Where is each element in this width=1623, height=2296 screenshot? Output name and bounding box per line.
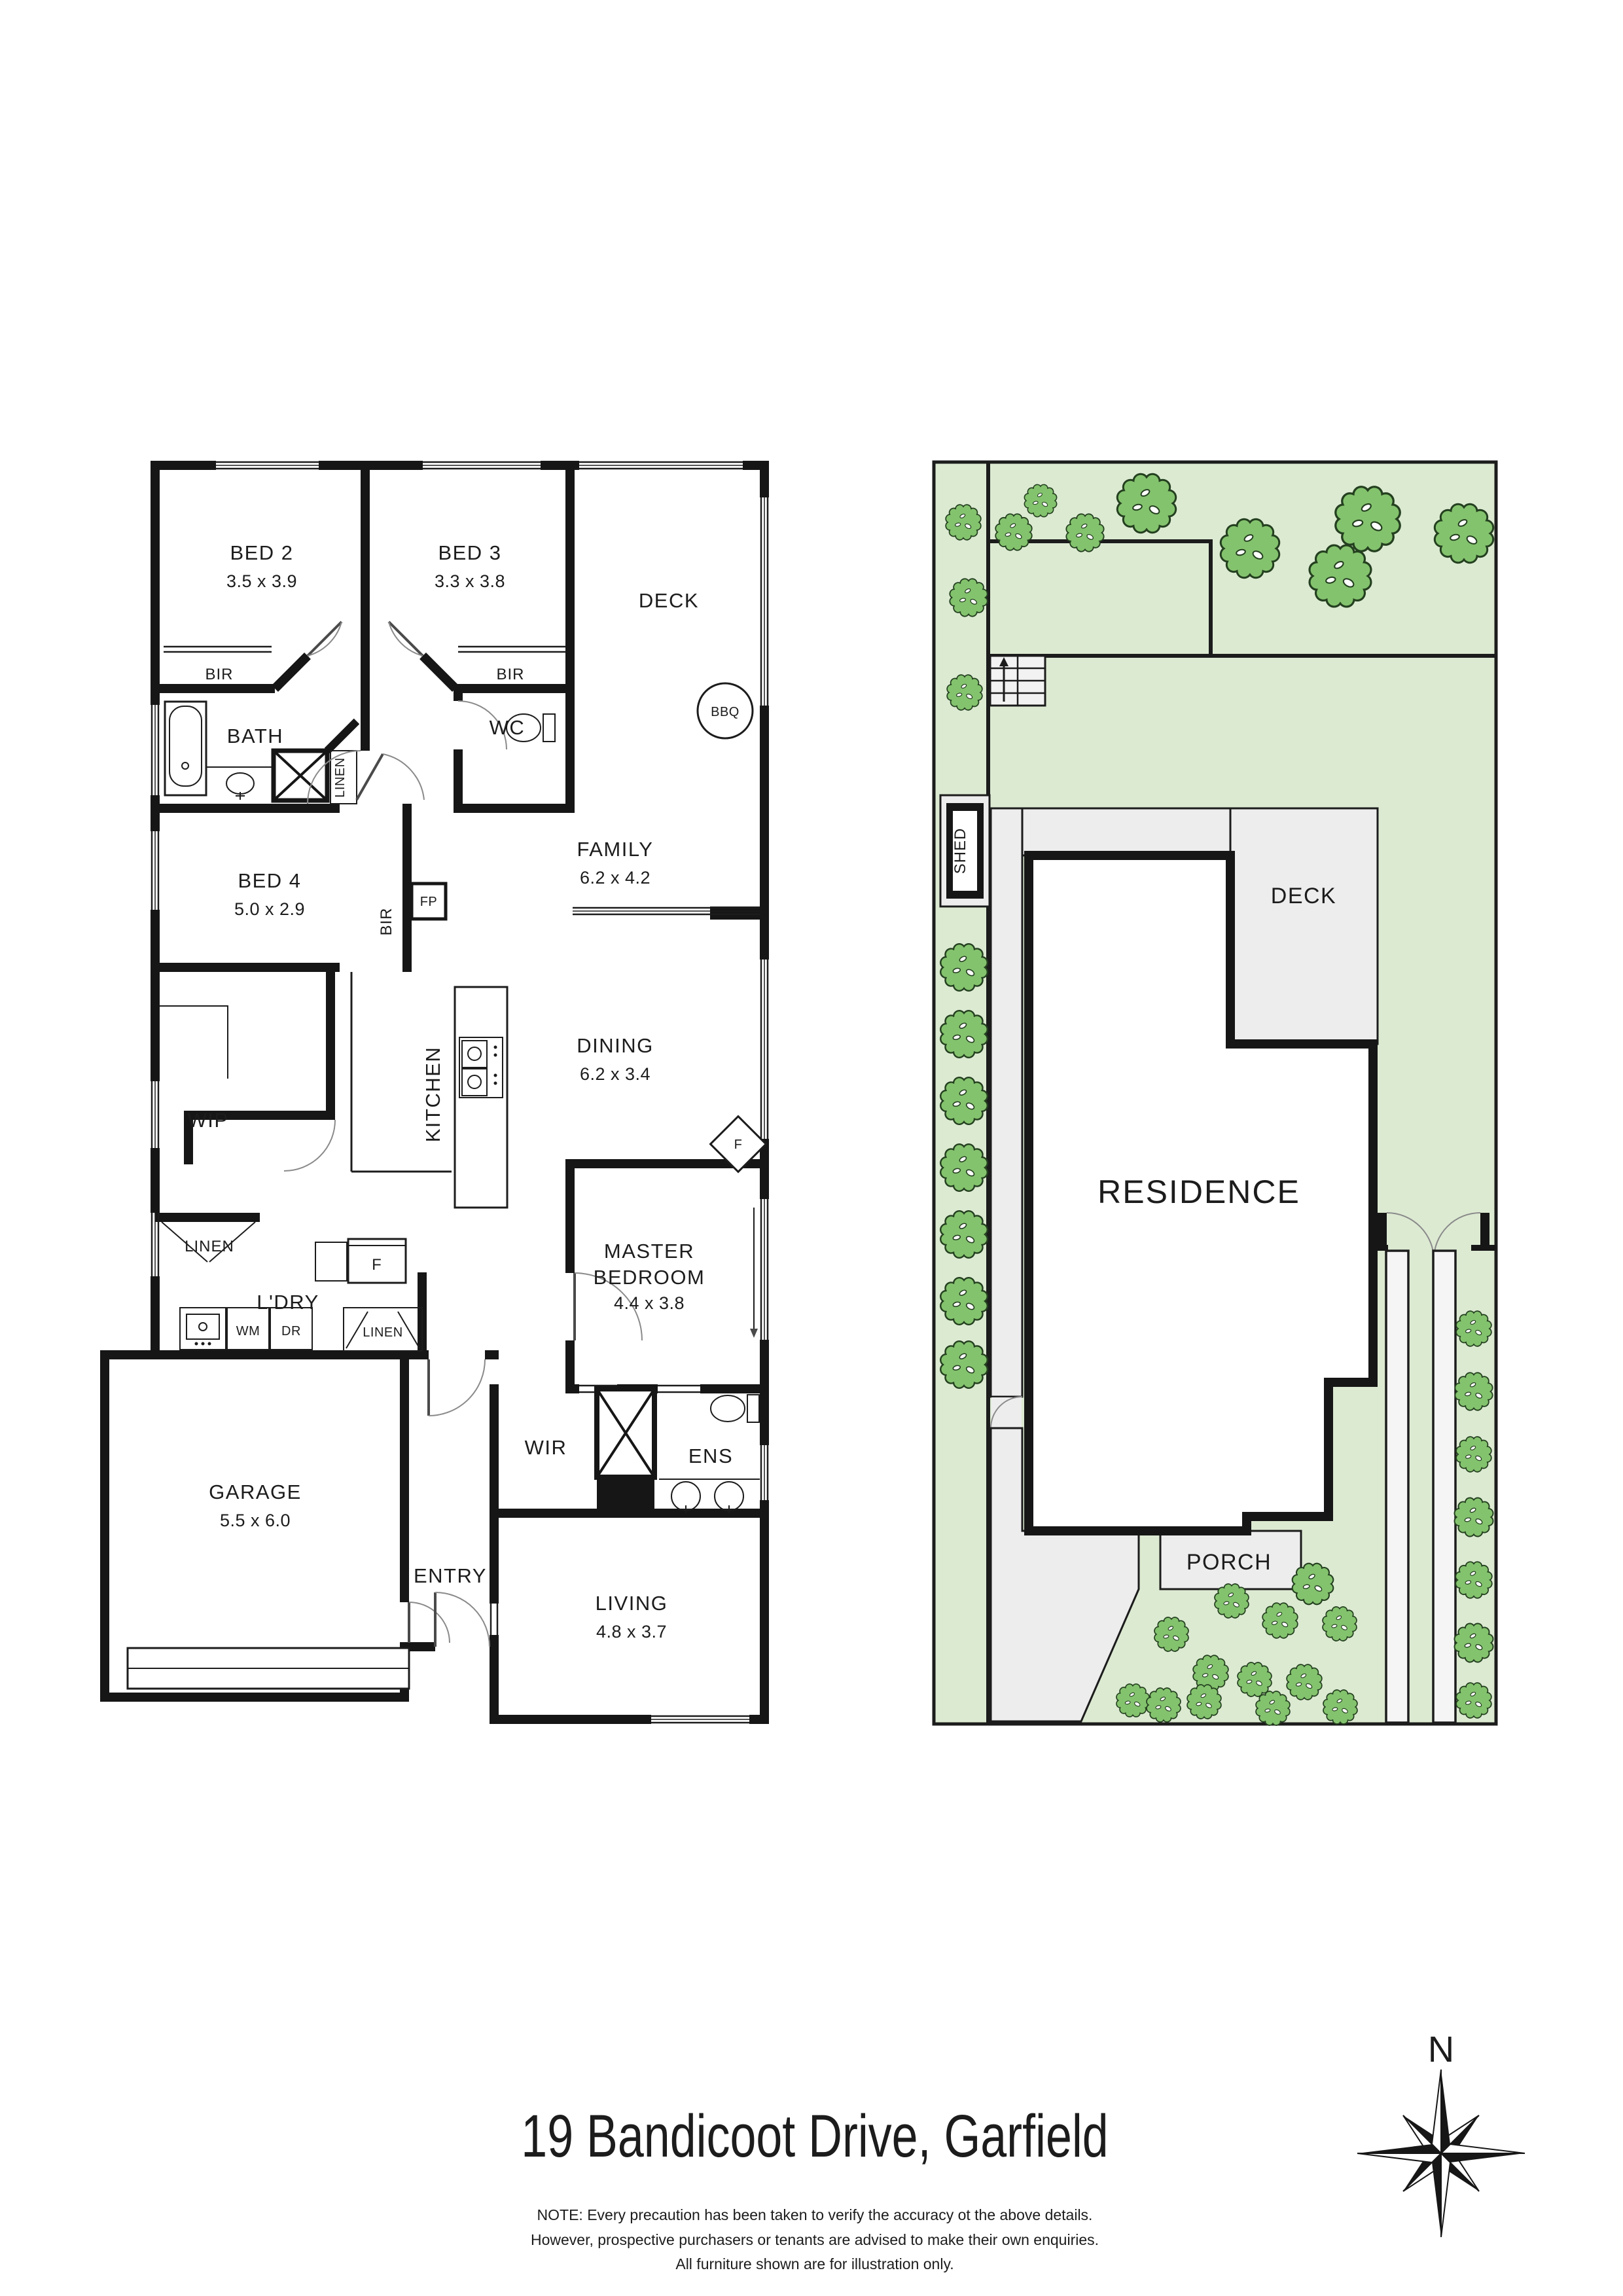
- tree-icon: [1456, 1311, 1491, 1346]
- tree-icon: [1066, 514, 1103, 551]
- walkway-left: [991, 808, 1022, 1397]
- master-dims: 4.4 x 3.8: [614, 1293, 685, 1313]
- bed2-label: BED 2: [230, 541, 293, 564]
- svg-text:FP: FP: [420, 895, 438, 909]
- note-line-1: NOTE: Every precaution has been taken to…: [537, 2206, 1093, 2223]
- svg-text:F: F: [734, 1138, 743, 1152]
- kitchen-label: KITCHEN: [421, 1047, 444, 1143]
- tree-icon: [1187, 1685, 1221, 1719]
- fixtures: BBQ FP: [128, 683, 766, 1689]
- bath-label: BATH: [227, 725, 283, 747]
- entry-label: ENTRY: [414, 1564, 487, 1587]
- site-porch-label: PORCH: [1186, 1550, 1272, 1575]
- bir-left-label: BIR: [205, 666, 233, 683]
- deck-label: DECK: [639, 589, 699, 612]
- footer: 19 Bandicoot Drive, Garfield NOTE: Every…: [521, 2028, 1525, 2272]
- living-label: LIVING: [596, 1592, 668, 1615]
- tree-icon: [1024, 484, 1056, 516]
- ens-label: ENS: [688, 1444, 733, 1467]
- wir-label: WIR: [525, 1436, 567, 1459]
- tree-icon: [940, 1211, 988, 1258]
- tree-icon: [1310, 545, 1371, 607]
- tree-icon: [1215, 1584, 1249, 1618]
- tree-icon: [995, 514, 1031, 550]
- ens-toilet-icon: [711, 1395, 759, 1422]
- tree-icon: [1323, 1690, 1357, 1724]
- svg-text:BBQ: BBQ: [711, 705, 740, 719]
- tree-icon: [1238, 1662, 1272, 1696]
- wm-label: WM: [236, 1324, 260, 1338]
- tree-icon: [1117, 474, 1175, 532]
- note-line-3: All furniture shown are for illustration…: [675, 2255, 954, 2272]
- tree-icon: [1455, 1372, 1492, 1410]
- garden-strip: [1386, 1251, 1408, 1723]
- floor-plan: BBQ FP: [100, 461, 769, 1724]
- living-dims: 4.8 x 3.7: [596, 1622, 667, 1641]
- tree-icon: [1435, 504, 1493, 562]
- site-plan: SHED RESIDENCE DECK PORCH: [934, 462, 1496, 1725]
- bathtub-icon: [165, 702, 206, 795]
- wip-label: WIP: [187, 1109, 228, 1132]
- tree-icon: [940, 1341, 988, 1388]
- bath-basin-icon: [206, 767, 274, 800]
- stove-icon: [459, 1037, 503, 1098]
- wc-label: WC: [490, 716, 526, 739]
- dr-label: DR: [281, 1324, 301, 1338]
- tree-icon: [940, 944, 988, 991]
- bir-right-label: BIR: [496, 666, 524, 683]
- tree-icon: [1287, 1664, 1322, 1700]
- tree-icon: [1456, 1683, 1491, 1718]
- tree-icon: [1323, 1607, 1357, 1641]
- tree-icon: [940, 1144, 988, 1191]
- bed4-dims: 5.0 x 2.9: [234, 899, 305, 919]
- bir-bed4-label: BIR: [378, 907, 395, 935]
- linen-bath-label: LINEN: [333, 757, 348, 797]
- fridge-icon: F: [348, 1239, 406, 1283]
- tree-icon: [1336, 487, 1400, 551]
- master-label2: BEDROOM: [594, 1266, 705, 1289]
- tree-icon: [1454, 1623, 1493, 1662]
- site-deck: [1230, 808, 1378, 1044]
- note-line-2: However, prospective purchasers or tenan…: [531, 2231, 1099, 2248]
- floorplan-page: SHED RESIDENCE DECK PORCH: [0, 0, 1623, 2296]
- site-deck-label: DECK: [1271, 884, 1336, 908]
- garage-door-icon: [128, 1648, 409, 1689]
- tree-icon: [1154, 1617, 1188, 1651]
- master-label1: MASTER: [604, 1240, 694, 1263]
- laundry-trough-icon: [180, 1308, 226, 1350]
- linen2-label: LINEN: [363, 1325, 402, 1340]
- bed3-dims: 3.3 x 3.8: [435, 571, 505, 591]
- ens-basins-icon: [659, 1479, 760, 1513]
- family-label: FAMILY: [577, 838, 654, 861]
- dining-label: DINING: [577, 1034, 654, 1057]
- compass-n-label: N: [1428, 2028, 1454, 2070]
- bed2-dims: 3.5 x 3.9: [226, 571, 297, 591]
- residence-label: RESIDENCE: [1097, 1174, 1300, 1210]
- linen1-label: LINEN: [185, 1238, 234, 1255]
- family-dims: 6.2 x 4.2: [580, 868, 651, 888]
- tree-icon: [1293, 1564, 1334, 1605]
- ldry-label: L'DRY: [257, 1291, 319, 1314]
- wir-robe-icon: [597, 1389, 654, 1477]
- tree-icon: [940, 1077, 988, 1124]
- tree-icon: [1456, 1437, 1491, 1472]
- tree-icon: [1147, 1688, 1181, 1722]
- garage-label: GARAGE: [209, 1480, 302, 1503]
- shed: SHED: [940, 795, 990, 906]
- garden-strip: [1433, 1251, 1455, 1723]
- tree-icon: [1262, 1603, 1298, 1638]
- tree-icon: [947, 675, 982, 710]
- shed-label: SHED: [952, 828, 969, 874]
- bed4-label: BED 4: [238, 869, 301, 892]
- page-title: 19 Bandicoot Drive, Garfield: [521, 2102, 1108, 2170]
- dining-dims: 6.2 x 3.4: [580, 1064, 651, 1084]
- compass-rose-icon: N: [1357, 2028, 1525, 2237]
- tree-icon: [940, 1011, 988, 1058]
- tree-icon: [1454, 1498, 1493, 1536]
- tree-icon: [1256, 1691, 1290, 1725]
- bed3-label: BED 3: [438, 541, 501, 564]
- bbq-icon: BBQ: [698, 683, 753, 738]
- tree-icon: [1455, 1562, 1491, 1598]
- tree-icon: [940, 1278, 988, 1325]
- garage-dims: 5.5 x 6.0: [220, 1511, 291, 1530]
- fireplace-icon: FP: [412, 884, 446, 919]
- tree-icon: [950, 579, 987, 616]
- stairs-icon: [990, 656, 1045, 706]
- tree-icon: [1221, 519, 1279, 577]
- tree-icon: [946, 505, 981, 540]
- svg-text:F: F: [372, 1256, 382, 1274]
- bath-cabinet-icon: [274, 751, 327, 800]
- tree-icon: [1116, 1684, 1149, 1717]
